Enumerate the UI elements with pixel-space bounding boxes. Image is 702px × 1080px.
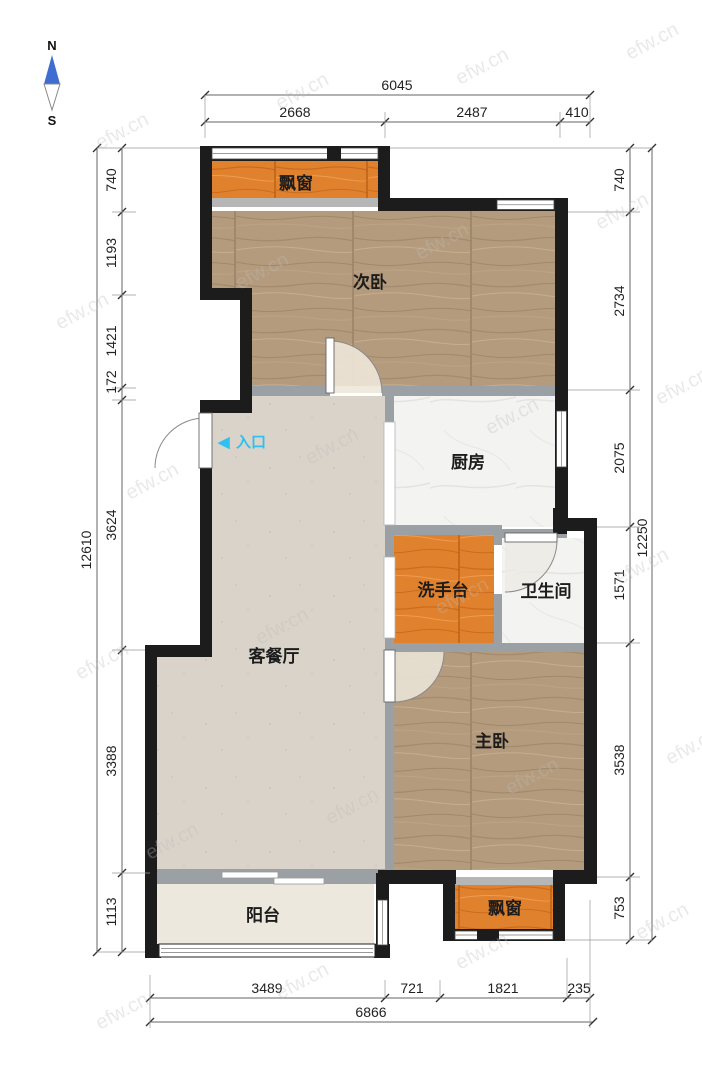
sliding-panel-right (274, 878, 324, 884)
master-bedroom-label: 主卧 (475, 731, 509, 751)
wall-notch-vertical (240, 288, 252, 406)
wall-right-master (584, 518, 597, 884)
basin-opening (384, 557, 395, 638)
dim-left-seg-2: 1421 (103, 325, 119, 356)
wall-basin-bath-a (494, 525, 502, 545)
bathroom-label: 卫生间 (521, 581, 572, 601)
dim-left-seg-1: 1193 (103, 238, 119, 268)
wall-bedroom2-south-right (382, 386, 560, 396)
wall-living-kitchen-a (385, 396, 394, 422)
dim-bottom-overall: 6866 (355, 1004, 386, 1020)
watermark-text: efw.cn (122, 458, 182, 504)
floorplan-svg: ◀ 入口 飘窗 次卧 厨房 洗手台 卫生间 客餐厅 主卧 阳台 飘窗 6045 … (0, 0, 702, 1080)
dim-right-seg-1: 2734 (611, 285, 627, 316)
bay-window-top-label: 飘窗 (279, 173, 313, 193)
dim-left-seg-5: 3388 (103, 745, 119, 776)
bay-top-window-mullion (327, 146, 341, 161)
watermark-text: efw.cn (622, 18, 682, 64)
entrance-arrow-icon: ◀ (217, 434, 230, 451)
entrance-door-leaf (199, 413, 212, 468)
bedroom2-door-leaf (326, 338, 334, 393)
entrance-door-arc (155, 418, 205, 468)
bay-bottom-sill (455, 877, 553, 885)
balcony-label: 阳台 (246, 905, 280, 925)
dim-right-seg-5: 753 (611, 896, 627, 920)
wall-right-kitchen (555, 198, 568, 530)
compass-south-arrow-icon (44, 84, 60, 110)
dim-bottom-seg-3: 235 (567, 980, 591, 996)
compass-north-label: N (47, 38, 56, 53)
watermark-text: efw.cn (662, 723, 702, 769)
watermark-text: efw.cn (632, 898, 692, 944)
dim-left-seg-3: 172 (103, 370, 119, 394)
wall-bedroom2-south-left (252, 386, 330, 396)
watermark-text: efw.cn (452, 43, 512, 89)
wall-left-upper (200, 146, 212, 298)
dim-right-seg-2: 2075 (611, 442, 627, 473)
dim-bottom-seg-2: 1821 (487, 980, 518, 996)
second-bedroom-label: 次卧 (353, 272, 387, 292)
wall-living-kitchen-b (385, 525, 394, 557)
watermark-text: efw.cn (92, 988, 152, 1034)
sliding-panel-left (222, 872, 278, 878)
watermark-text: efw.cn (592, 188, 652, 234)
dim-left-seg-6: 1113 (103, 897, 119, 926)
dim-left-overall: 12610 (78, 530, 94, 569)
floorplan-image: ◀ 入口 飘窗 次卧 厨房 洗手台 卫生间 客餐厅 主卧 阳台 飘窗 6045 … (0, 0, 702, 1080)
bathroom-door-leaf (505, 533, 557, 542)
balcony-window (159, 944, 375, 957)
dim-top-stubs (205, 95, 590, 138)
dim-bottom-seg-1: 721 (400, 980, 424, 996)
dim-left-seg-4: 3624 (103, 509, 119, 540)
entrance-label: 入口 (236, 434, 266, 451)
watermark-text: efw.cn (72, 638, 132, 684)
compass: N S (44, 38, 60, 128)
living-dining-label: 客餐厅 (248, 646, 300, 666)
second-bedroom-floor (212, 211, 555, 386)
dim-right-seg-4: 3538 (611, 744, 627, 775)
wall-left-lower (145, 650, 157, 952)
bay-top-sill (212, 198, 378, 207)
wall-living-master (385, 702, 394, 873)
kitchen-label: 厨房 (451, 452, 485, 472)
wall-kitchen-basin (394, 525, 494, 535)
dim-left-seg-0: 740 (103, 168, 119, 192)
dim-top-seg-1: 2487 (456, 104, 487, 120)
entrance-mark: ◀ 入口 (217, 434, 266, 451)
compass-south-label: S (48, 113, 57, 128)
wall-entry-header (200, 400, 252, 413)
master-door-leaf (384, 650, 395, 702)
dim-top: 6045 2668 2487 410 (201, 77, 594, 138)
wall-master-north (394, 643, 590, 652)
kitchen-opening (384, 422, 395, 525)
bay-window-bottom-label: 飘窗 (488, 898, 522, 918)
wall-left-mid (200, 466, 212, 657)
compass-north-arrow-icon (44, 55, 60, 84)
dim-top-overall: 6045 (381, 77, 412, 93)
dim-right-seg-0: 740 (611, 168, 627, 192)
watermark-text: efw.cn (652, 363, 702, 409)
dim-top-seg-2: 410 (565, 104, 589, 120)
